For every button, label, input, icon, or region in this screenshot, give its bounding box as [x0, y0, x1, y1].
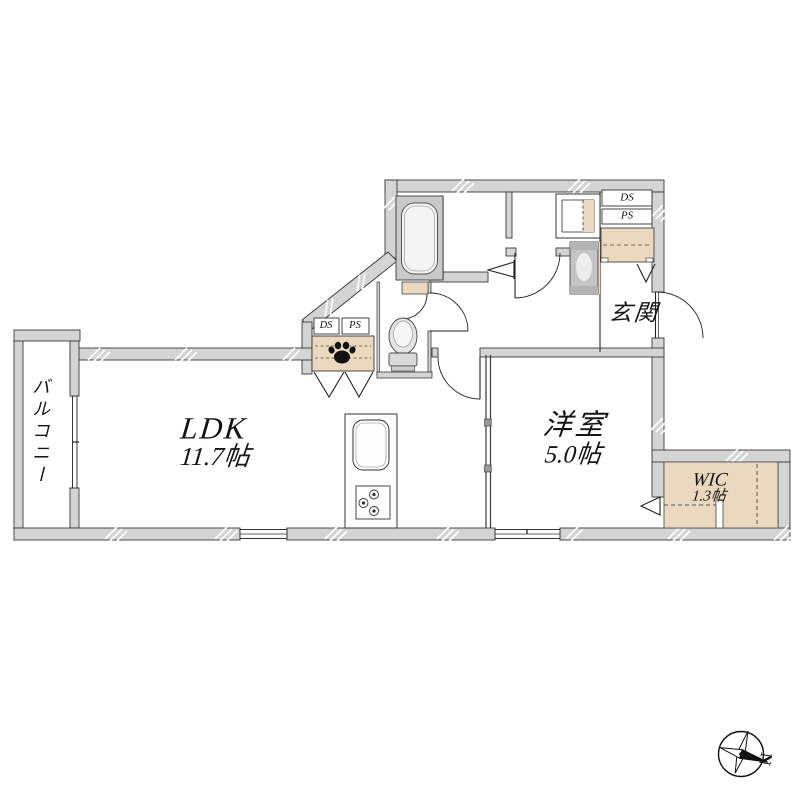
balcony-window — [70, 396, 79, 488]
wic-label: WIC — [692, 471, 729, 490]
entrance-label: 玄関 — [608, 302, 660, 325]
wic-folding-door — [641, 497, 660, 515]
ds-upper-label: DS — [620, 193, 633, 204]
toilet-room — [389, 282, 428, 371]
washbasin — [570, 242, 600, 294]
bedroom-bottom-window — [495, 528, 560, 540]
ldk-label: LDK — [179, 413, 249, 444]
bedroom-area-label: 5.0帖 — [544, 443, 603, 468]
floor-plan-page: LDK 11.7帖 洋室 5.0帖 WIC 1.3帖 玄関 バルコニー DS P… — [0, 0, 800, 800]
kitchen-sink — [353, 420, 389, 470]
washroom-door — [515, 253, 560, 298]
ldk-bottom-window — [240, 528, 287, 540]
wic-area-label: 1.3帖 — [691, 490, 726, 505]
bedroom-label: 洋室 — [541, 412, 608, 441]
ldk-door — [438, 357, 480, 399]
bathroom-folding-door — [488, 260, 514, 279]
toilet-cabinet — [402, 282, 428, 294]
ldk-area-label: 11.7帖 — [179, 444, 251, 470]
toilet — [389, 318, 417, 371]
floor-plan-drawing — [0, 0, 800, 800]
ds-ldk-label: DS — [320, 321, 333, 332]
toilet-cabinet-door — [402, 294, 427, 319]
stove — [356, 486, 390, 519]
entrance-door — [656, 292, 704, 338]
balcony-label: バルコニー — [31, 377, 49, 487]
pet-storage-doors — [314, 372, 373, 397]
shoe-cabinet — [601, 228, 654, 262]
bathtub — [402, 203, 438, 274]
bathroom-unit — [396, 196, 443, 280]
toilet-door — [430, 293, 468, 331]
ps-upper-label: PS — [621, 211, 633, 222]
ps-ldk-label: PS — [349, 321, 361, 332]
washer-pan — [556, 194, 600, 238]
kitchen-counter — [345, 414, 397, 528]
